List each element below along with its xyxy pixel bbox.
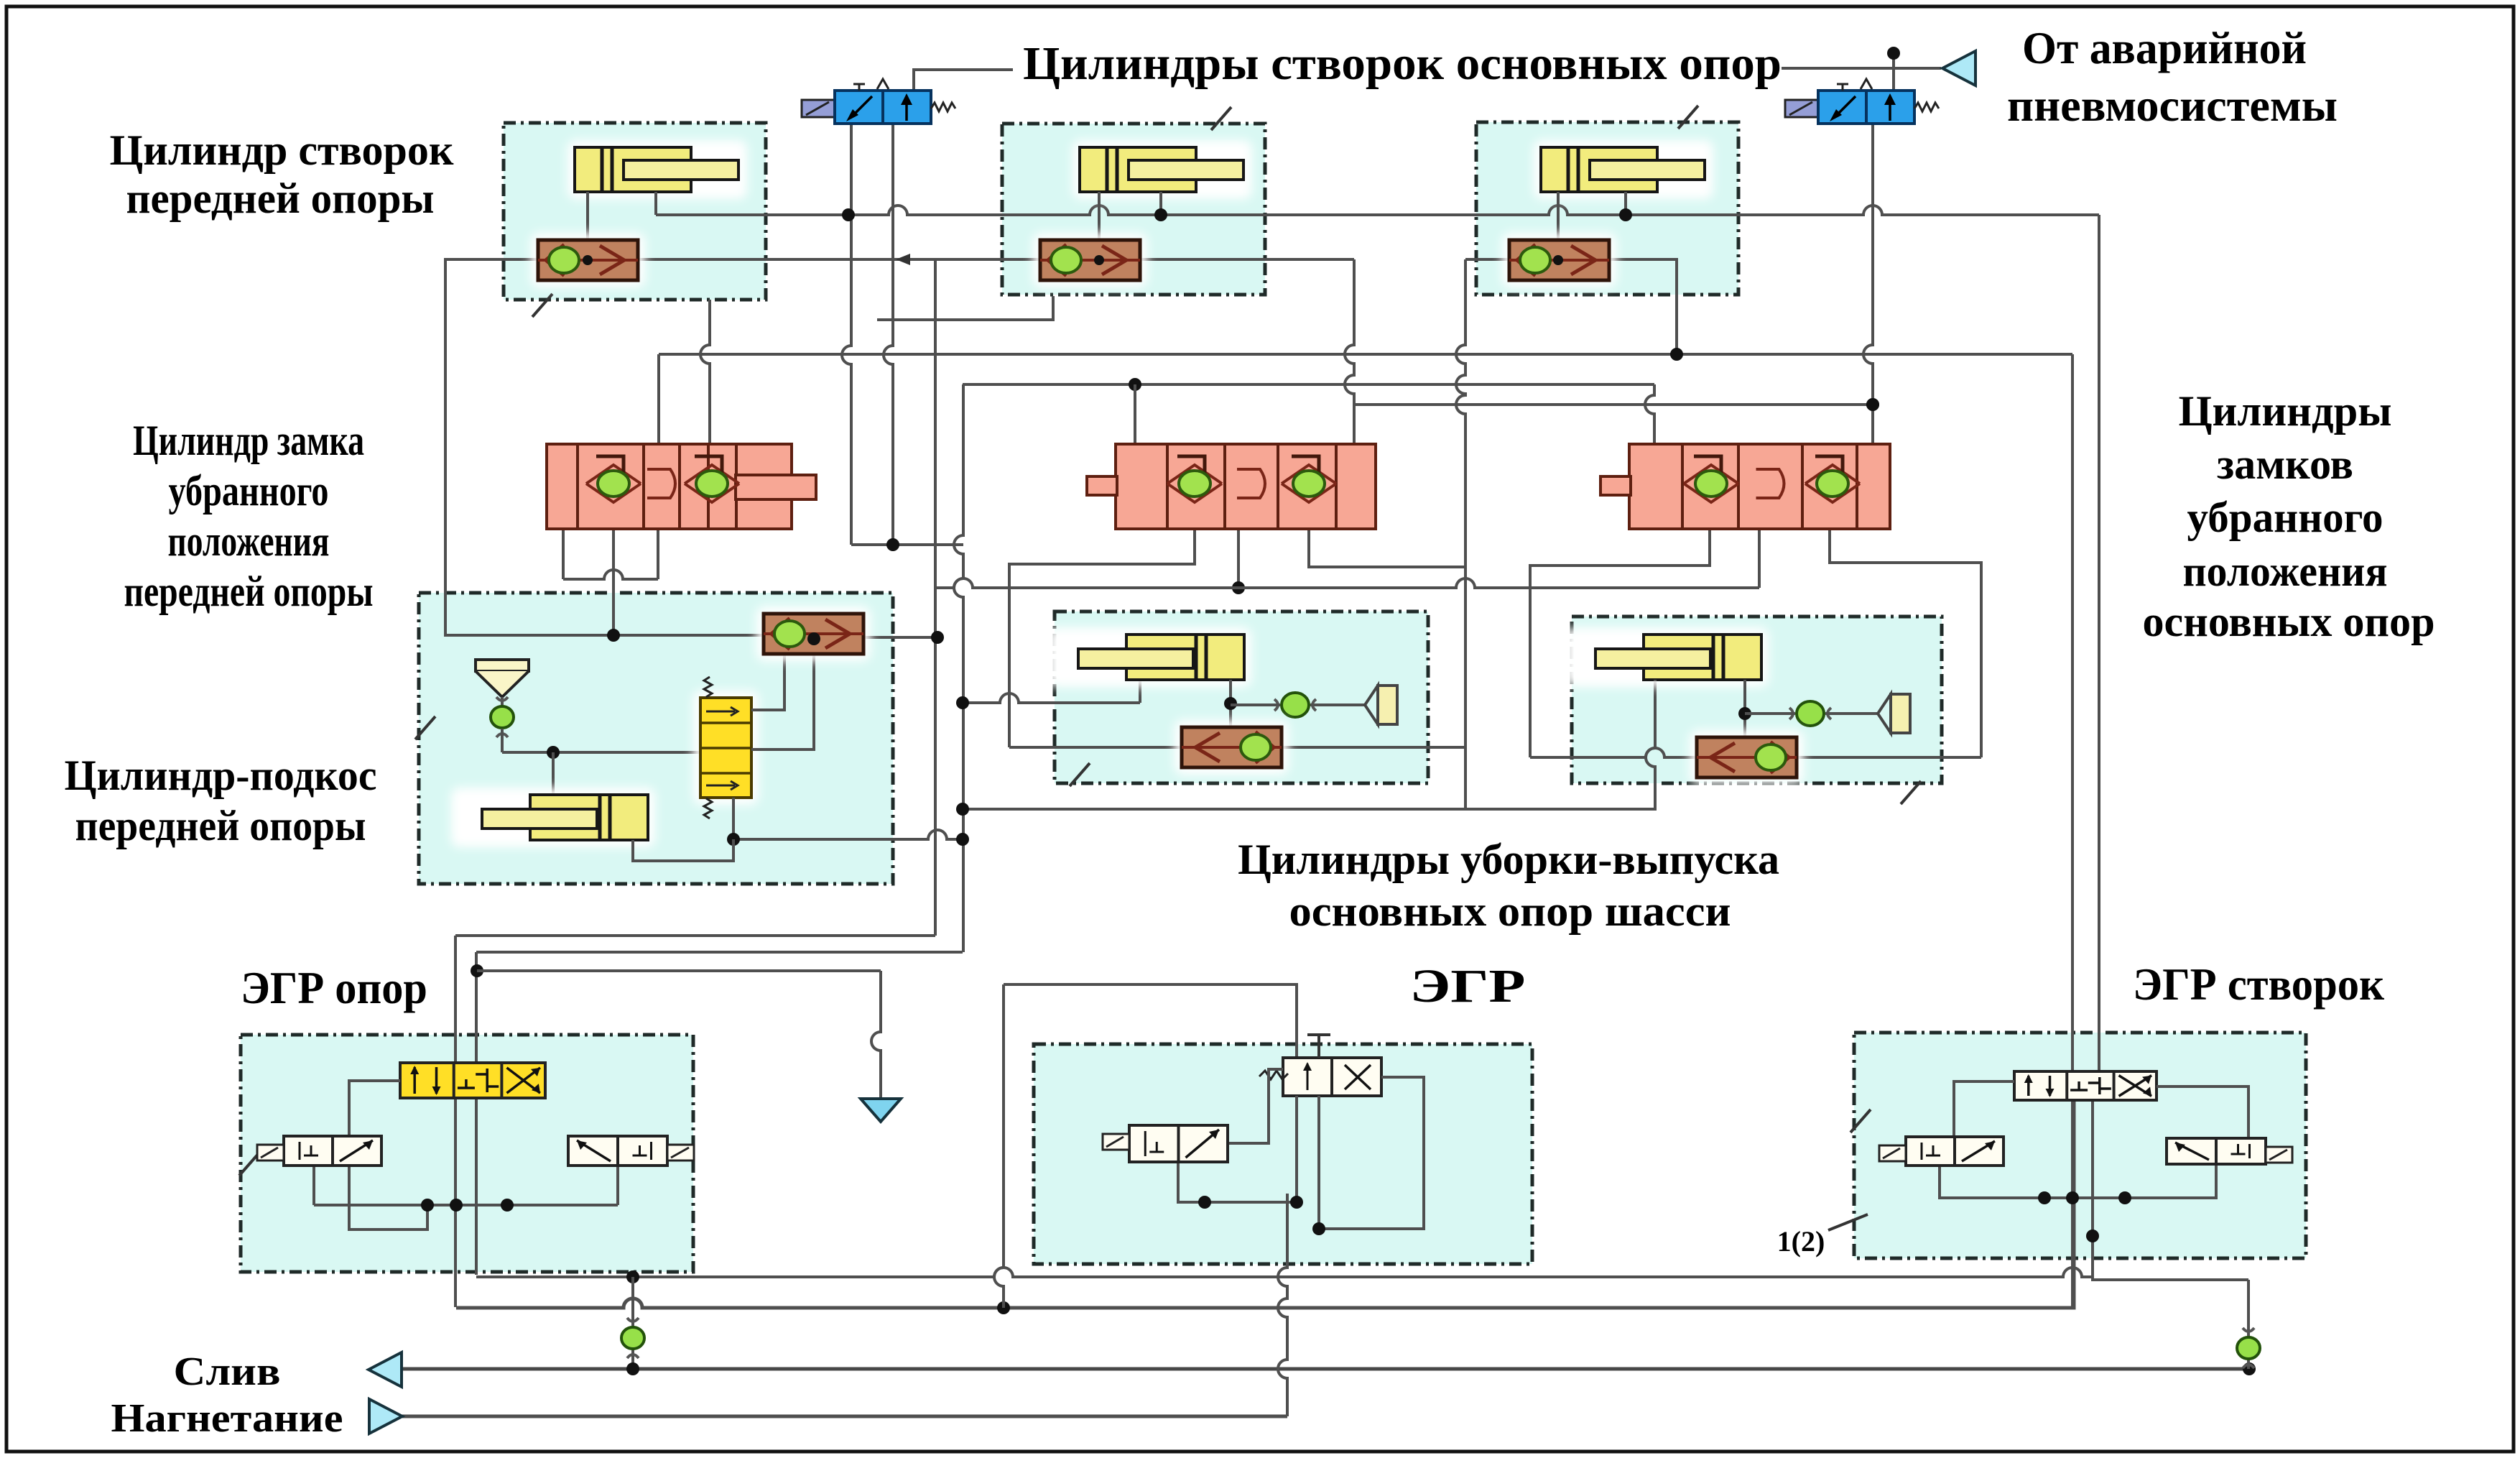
svg-text:основных опор шасси: основных опор шасси [1289,887,1731,935]
svg-text:1(2): 1(2) [1777,1225,1825,1258]
svg-text:передней опоры: передней опоры [126,175,435,222]
svg-text:Слив: Слив [174,1349,281,1394]
svg-text:пневмосистемы: пневмосистемы [2007,80,2338,131]
svg-text:замков: замков [2217,440,2353,488]
svg-text:положения: положения [2183,548,2388,595]
svg-text:Цилиндры: Цилиндры [2179,387,2392,435]
svg-text:От аварийной: От аварийной [2022,22,2307,73]
svg-text:ЭГР опор: ЭГР опор [241,962,427,1013]
svg-text:ЭГР: ЭГР [1410,960,1526,1012]
svg-text:передней опоры: передней опоры [124,568,374,615]
svg-text:основных опор: основных опор [2143,598,2435,645]
svg-text:убранного: убранного [2187,494,2384,541]
svg-text:убранного: убранного [169,467,329,515]
svg-text:Нагнетание: Нагнетание [111,1396,343,1441]
svg-text:Цилиндр створок: Цилиндр створок [110,126,454,174]
svg-text:передней опоры: передней опоры [75,802,366,849]
svg-text:положения: положения [168,517,330,565]
svg-text:Цилиндры уборки-выпуска: Цилиндры уборки-выпуска [1238,836,1779,883]
svg-text:ЭГР створок: ЭГР створок [2133,959,2384,1010]
svg-text:Цилиндры створок основных опор: Цилиндры створок основных опор [1023,37,1782,90]
svg-text:Цилиндр замка: Цилиндр замка [133,417,364,464]
svg-text:Цилиндр-подкос: Цилиндр-подкос [65,752,377,799]
